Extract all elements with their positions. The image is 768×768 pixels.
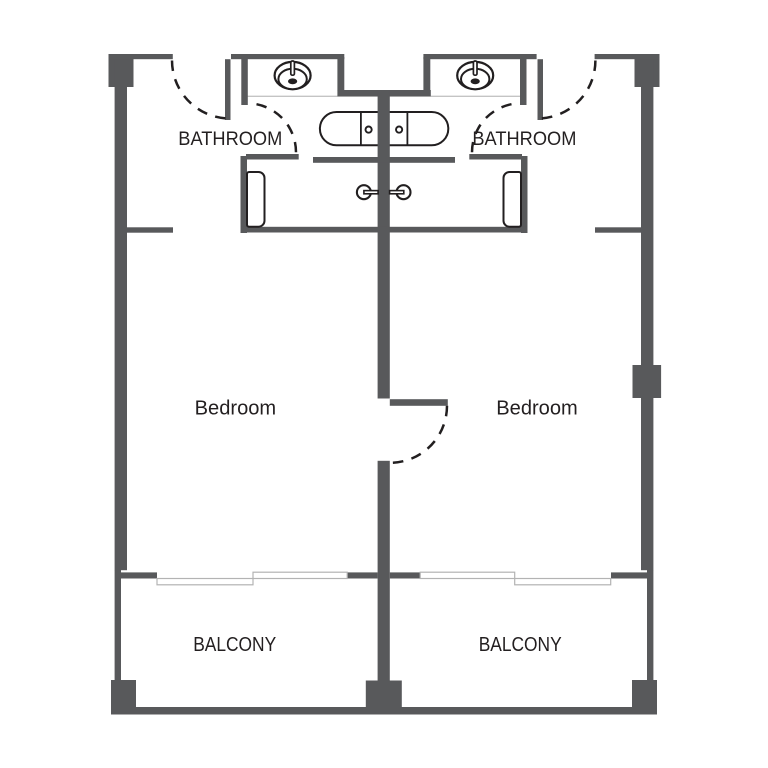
svg-text:BALCONY: BALCONY [193,633,276,656]
svg-text:Bedroom: Bedroom [496,397,578,419]
svg-text:Bedroom: Bedroom [195,397,277,419]
svg-text:BATHROOM: BATHROOM [178,129,282,150]
svg-text:BATHROOM: BATHROOM [472,129,576,150]
svg-text:BALCONY: BALCONY [479,633,562,656]
